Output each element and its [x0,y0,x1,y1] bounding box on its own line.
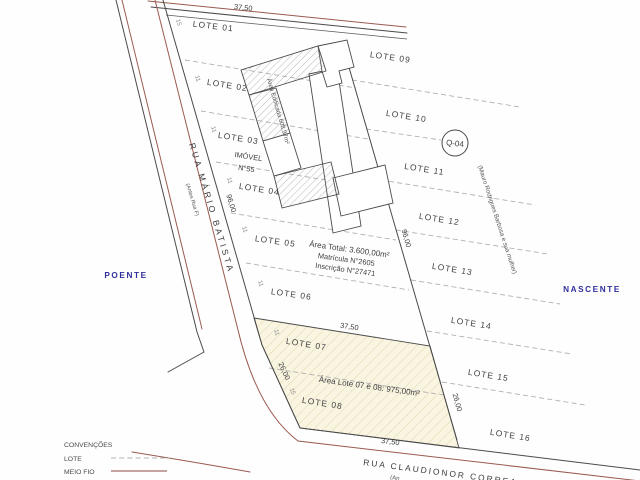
frontage-tick-11: 11 [225,177,233,185]
dimension-depth-east: 96,00 [400,228,414,248]
lot-label: LOTE 06 [270,286,312,302]
lot-label: LOTE 10 [385,108,427,124]
bottom-street-curb-return [132,452,250,472]
site-plan-drawing: Q-04 LOTE 01 LOTE 02 LOTE 03 LOTE 04 LOT… [0,0,640,480]
top-street-curb-line [148,1,406,27]
lot-label: LOTE 15 [467,367,509,383]
quadra-badge-label: Q-04 [446,138,465,149]
building-footprint [241,40,393,233]
dimension-frontage-top: 37,50 [234,2,253,13]
frontage-tick-11: 11 [193,75,201,83]
lot-label: LOTE 11 [404,161,446,177]
legend-item-meio-fio: MEIO FIO [64,469,95,476]
frontage-tick-11: 11 [240,226,248,234]
compass-west-label: POENTE [104,271,147,280]
lot-label: LOTE 12 [418,211,460,227]
top-street-edge-line [151,7,407,33]
frontage-tick-11: 11 [209,126,217,134]
lot-line [427,331,572,354]
imovel-label: IMÓVEL [234,150,263,163]
lot-label: LOTE 14 [450,315,492,331]
lot-label: LOTE 03 [217,130,259,146]
main-street-former-name: (Antes Rua F) [184,183,200,217]
legend-item-lote: LOTE [64,456,82,463]
lot-line [442,382,585,405]
lot-label: LOTE 09 [369,49,411,65]
quadra-badge: Q-04 [442,130,468,156]
site-plan-page: Q-04 LOTE 01 LOTE 02 LOTE 03 LOTE 04 LOT… [0,0,640,480]
lot-label: LOTE 02 [206,77,248,93]
lot-line [381,180,535,205]
lot-line [396,230,548,254]
legend-title: CONVENÇÕES [64,440,113,449]
lot-label: LOTE 04 [238,181,280,197]
frontage-tick-11: 11 [256,280,264,288]
lot-line [352,80,520,107]
lot-line [411,280,560,304]
lot-label: LOTE 05 [254,233,296,249]
legend: CONVENÇÕES LOTE MEIO FIO [64,440,169,476]
cross-street-name: RUA CLAUDIONOR CORREA [363,457,519,480]
compass-east-label: NASCENTE [563,285,621,294]
dimension-depth-0708-east: 26,00 [451,392,465,412]
dimension-frontage-bottom: 37,50 [381,436,400,447]
dimension-frontage-mid: 37,50 [340,321,360,332]
lot-label: LOTE 16 [489,427,531,443]
lot-label: LOTE 13 [431,261,473,277]
neighbor-note: (Mauro Rodrigues Barbosa e sua mulher) [476,164,518,274]
imovel-number: N°55 [238,163,256,174]
frontage-tick-15: 15 [174,19,182,28]
cross-street-former-name: (An [390,475,400,480]
dimension-depth-west: 96,00 [224,193,238,213]
lot-line [366,129,441,140]
